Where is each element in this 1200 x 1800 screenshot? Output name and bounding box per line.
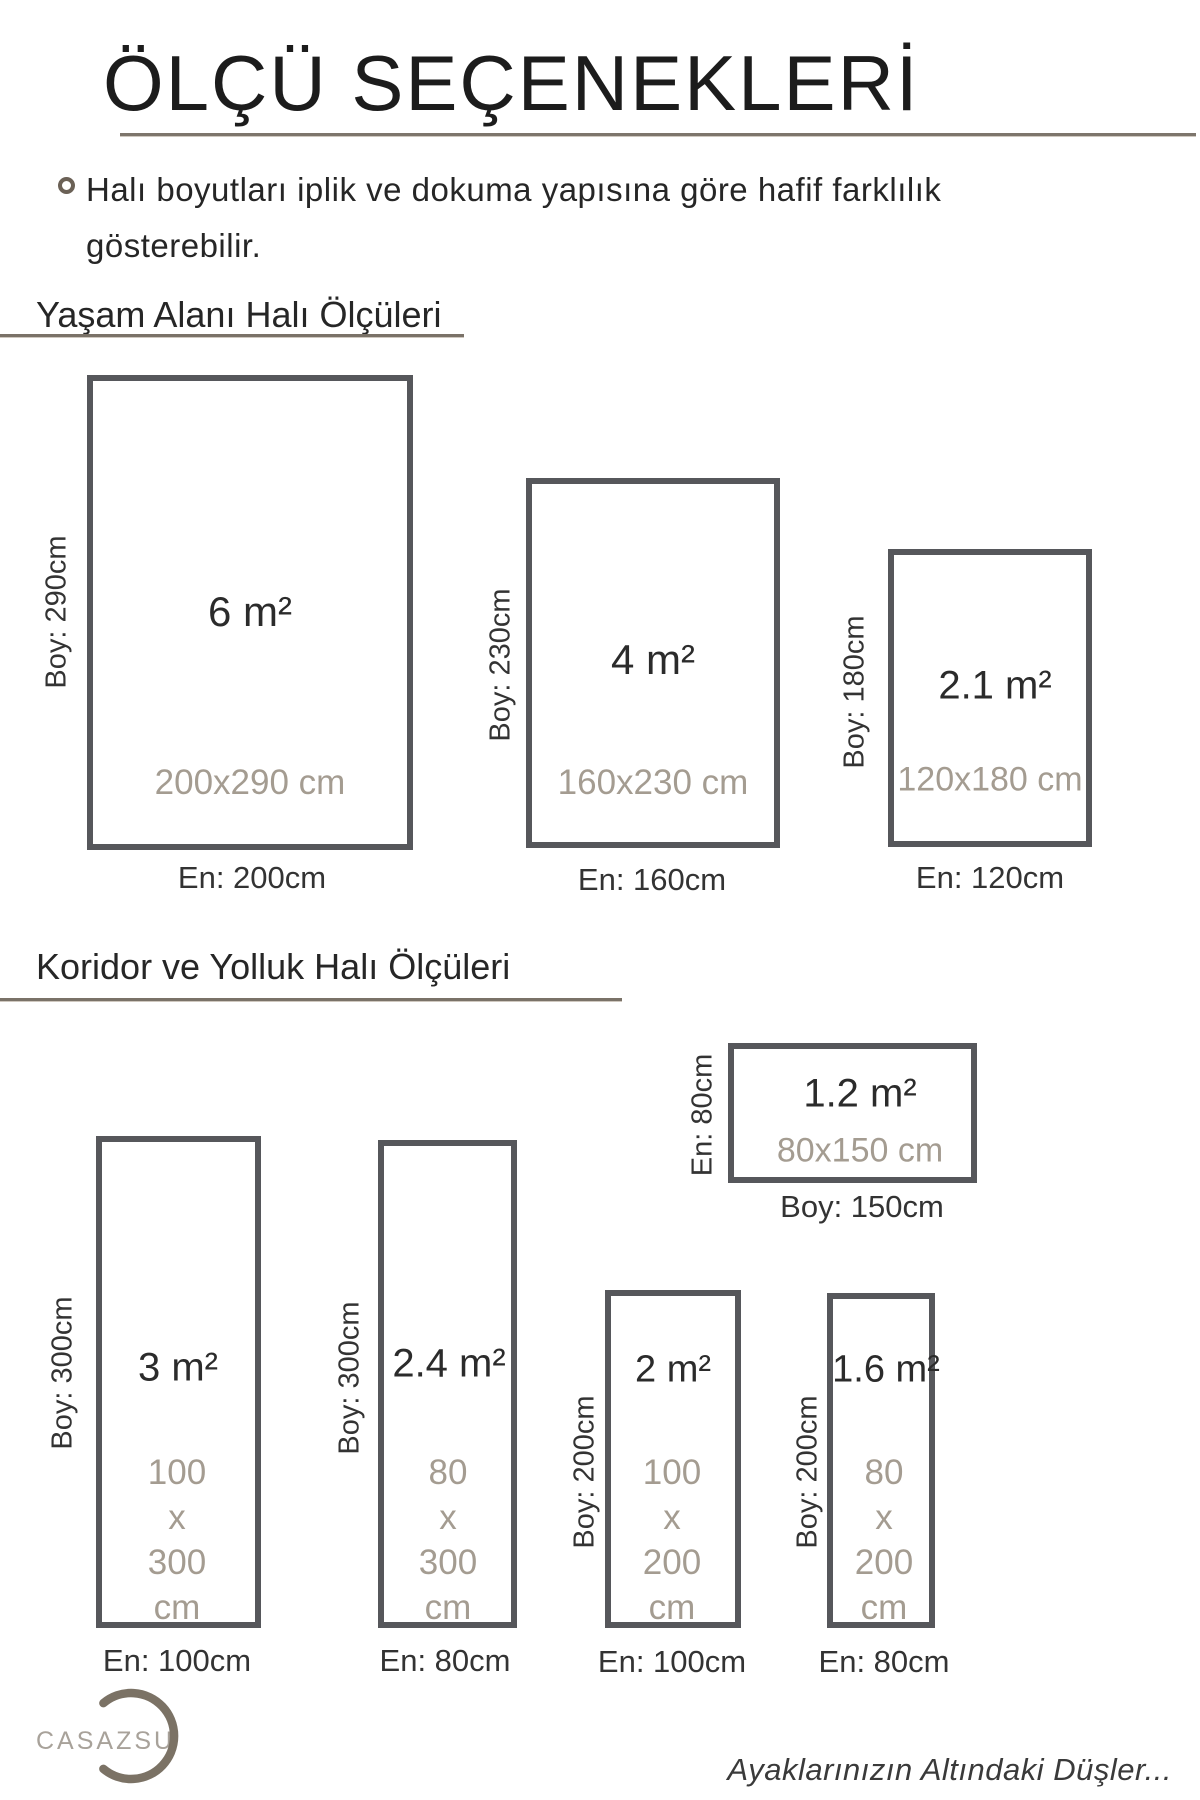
rug-length-label: Boy: 200cm xyxy=(569,1395,602,1548)
rug-length-label: Boy: 200cm xyxy=(792,1395,825,1548)
size-note-line1: Halı boyutları iplik ve dokuma yapısına … xyxy=(86,162,941,218)
size-note-line2: gösterebilir. xyxy=(86,218,941,274)
rug-dimensions-label: 80x150 cm xyxy=(777,1132,943,1171)
section-underline-runner xyxy=(0,998,622,1002)
rug-area-label: 1.6 m² xyxy=(832,1349,940,1392)
rug-dimensions-label: 100 x 200 cm xyxy=(643,1450,701,1630)
rug-area-label: 4 m² xyxy=(611,636,695,684)
rug-dimensions-label: 100 x 300 cm xyxy=(148,1450,206,1630)
rug-width-label: En: 80cm xyxy=(380,1643,511,1679)
rug-dimensions-label: 200x290 cm xyxy=(155,763,346,803)
rug-width-label: En: 200cm xyxy=(178,860,326,896)
rug-length-label: Boy: 300cm xyxy=(334,1301,367,1454)
rug-width-label: En: 100cm xyxy=(103,1643,251,1679)
rug-width-label: En: 80cm xyxy=(687,1054,720,1177)
rug-width-label: En: 80cm xyxy=(819,1644,950,1680)
rug-width-label: En: 120cm xyxy=(916,860,1064,896)
rug-area-label: 2.4 m² xyxy=(392,1342,505,1387)
section-heading-runner: Koridor ve Yolluk Halı Ölçüleri xyxy=(36,946,510,988)
rug-length-label: Boy: 180cm xyxy=(839,615,872,768)
rug-dimensions-label: 80 x 300 cm xyxy=(419,1450,477,1630)
section-underline-living-area xyxy=(0,334,464,338)
rug-area-label: 1.2 m² xyxy=(803,1072,916,1117)
rug-width-label: En: 100cm xyxy=(598,1644,746,1680)
brand-slogan: Ayaklarınızın Altındaki Düşler... xyxy=(727,1752,1172,1788)
rug-area-label: 6 m² xyxy=(208,588,292,636)
title-underline xyxy=(120,133,1196,137)
brand-logo-text: CASAZSU xyxy=(36,1727,175,1756)
rug-length-label: Boy: 150cm xyxy=(780,1189,944,1225)
rug-dimensions-label: 120x180 cm xyxy=(897,761,1082,800)
rug-area-label: 2.1 m² xyxy=(938,664,1051,709)
section-heading-living-area: Yaşam Alanı Halı Ölçüleri xyxy=(36,294,442,336)
rug-length-label: Boy: 230cm xyxy=(485,588,518,741)
rug-dimensions-label: 160x230 cm xyxy=(558,763,749,803)
bullet-icon xyxy=(58,177,75,194)
rug-dimensions-label: 80 x 200 cm xyxy=(855,1450,913,1630)
rug-area-label: 2 m² xyxy=(635,1349,711,1392)
page-title: ÖLÇÜ SEÇENEKLERİ xyxy=(103,38,920,129)
rug-width-label: En: 160cm xyxy=(578,862,726,898)
rug-length-label: Boy: 300cm xyxy=(47,1296,80,1449)
rug-length-label: Boy: 290cm xyxy=(41,535,74,688)
rug-area-label: 3 m² xyxy=(138,1346,218,1391)
size-options-infographic: ÖLÇÜ SEÇENEKLERİ Halı boyutları iplik ve… xyxy=(0,0,1200,1800)
size-note: Halı boyutları iplik ve dokuma yapısına … xyxy=(86,162,941,274)
